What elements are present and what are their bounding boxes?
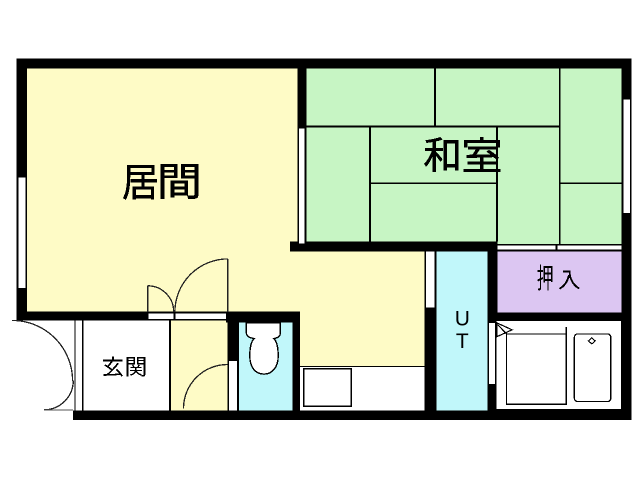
svg-text:T: T	[456, 330, 469, 353]
svg-text:U: U	[455, 308, 470, 331]
